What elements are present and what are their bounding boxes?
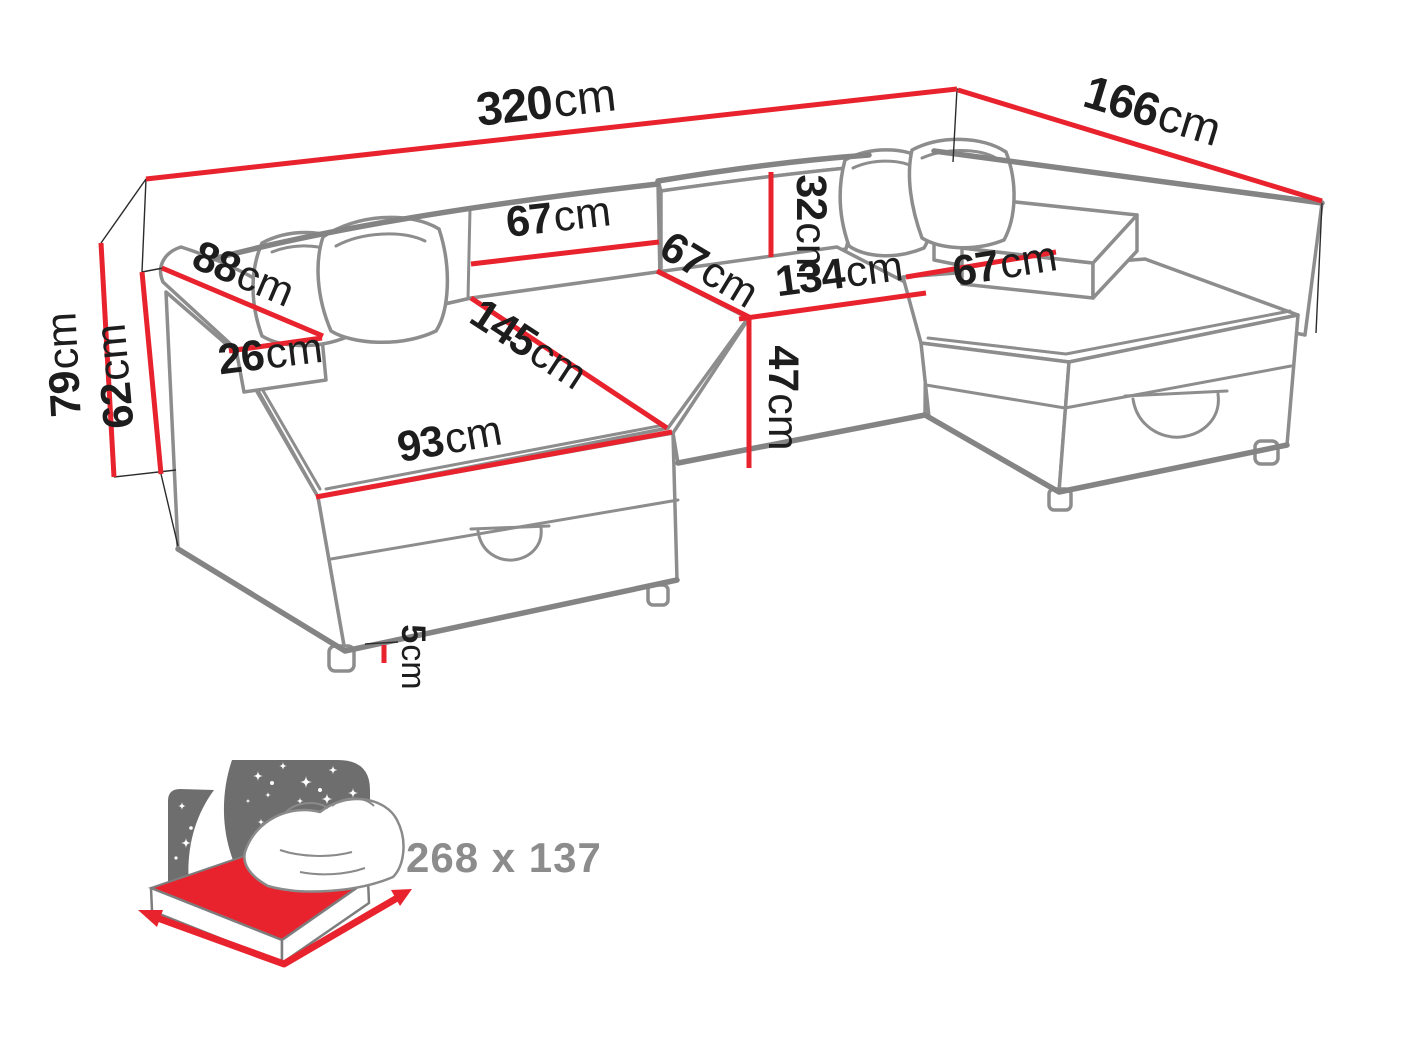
sleeping-area-size: 268 x 137 <box>406 834 602 881</box>
sofa-illustration <box>161 139 1322 671</box>
diagram-page: 320cm 166cm 79cm 62cm 88cm 26cm 67cm 32c… <box>0 0 1403 1052</box>
right-chaise-left-face <box>921 343 1069 492</box>
dim-label-total-height: 79cm <box>37 311 90 419</box>
sofa-backrest-seam <box>468 209 470 299</box>
sleeping-area-icon: 268 x 137 <box>138 760 602 964</box>
dim-label-total-width: 320cm <box>474 67 619 136</box>
sofa-dimension-diagram: 320cm 166cm 79cm 62cm 88cm 26cm 67cm 32c… <box>0 0 1403 1052</box>
dim-line-side-height <box>142 272 161 474</box>
dim-label-front-height: 47cm <box>759 345 807 450</box>
dim-label-leg-height: 5cm <box>394 624 432 689</box>
dim-label-side-height: 62cm <box>87 322 144 431</box>
dim-label-total-depth: 166cm <box>1078 64 1227 156</box>
